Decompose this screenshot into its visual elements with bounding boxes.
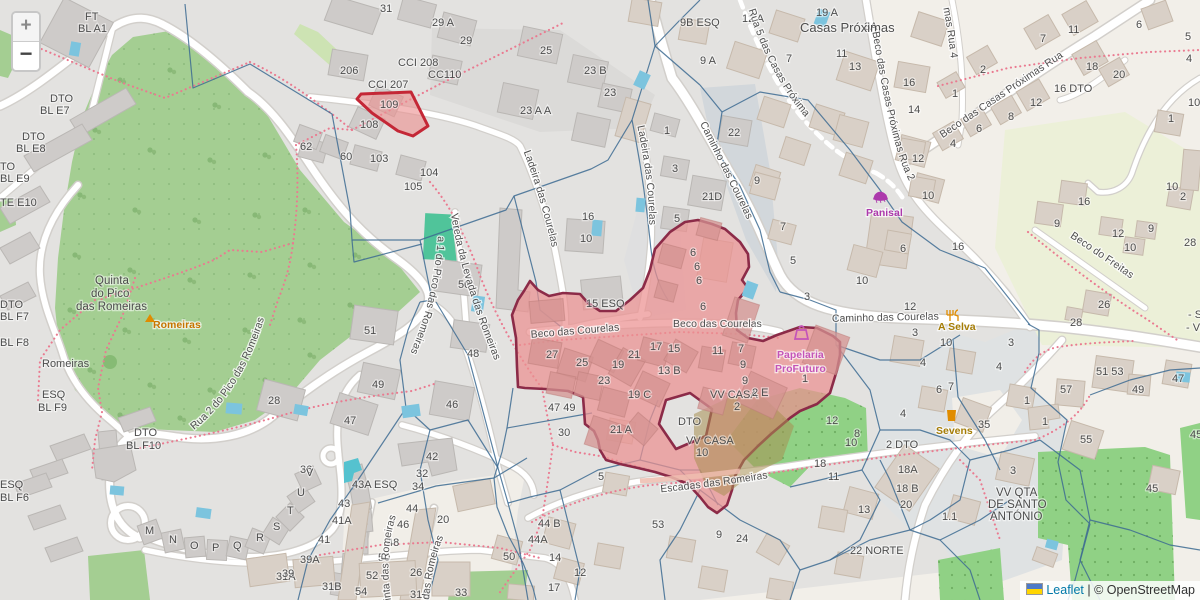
svg-text:11: 11 [836, 48, 847, 60]
svg-text:Beco das Courelas: Beco das Courelas [673, 318, 762, 330]
svg-text:M: M [145, 525, 154, 537]
svg-text:ESQ: ESQ [42, 389, 66, 401]
svg-text:103: 103 [370, 153, 388, 165]
svg-text:4: 4 [950, 138, 956, 150]
svg-text:10: 10 [845, 437, 857, 449]
svg-text:2 DTO: 2 DTO [886, 439, 919, 451]
svg-text:9: 9 [754, 175, 760, 187]
svg-text:das Romeiras: das Romeiras [76, 301, 147, 313]
svg-text:16: 16 [1078, 196, 1090, 208]
svg-text:28: 28 [1184, 237, 1196, 249]
svg-text:9: 9 [742, 375, 748, 387]
svg-text:ESQ: ESQ [0, 479, 24, 491]
svg-text:10: 10 [940, 337, 952, 349]
svg-text:13: 13 [849, 61, 861, 73]
svg-text:O: O [190, 540, 199, 552]
svg-text:BL F9: BL F9 [38, 402, 67, 414]
svg-text:44A: 44A [528, 534, 548, 546]
svg-text:13 B: 13 B [658, 365, 681, 377]
svg-text:- Vi: - Vi [1186, 322, 1200, 334]
svg-text:ProFuturo: ProFuturo [775, 363, 826, 375]
svg-text:47: 47 [344, 415, 356, 427]
svg-text:3: 3 [912, 327, 918, 339]
svg-text:3: 3 [804, 291, 810, 303]
svg-text:3: 3 [1008, 337, 1014, 349]
svg-text:31B: 31B [322, 581, 342, 593]
svg-text:S: S [273, 521, 280, 533]
svg-text:18: 18 [814, 458, 826, 470]
svg-text:23 B: 23 B [584, 65, 607, 77]
svg-text:44: 44 [406, 503, 418, 515]
svg-text:50: 50 [503, 551, 515, 563]
svg-text:BL F7: BL F7 [0, 311, 29, 323]
svg-text:22: 22 [728, 127, 740, 139]
svg-text:109: 109 [380, 99, 398, 111]
svg-text:BL A1: BL A1 [78, 23, 107, 35]
svg-text:4: 4 [1186, 53, 1192, 65]
svg-text:21: 21 [628, 349, 640, 361]
svg-text:3: 3 [672, 163, 678, 175]
svg-text:13: 13 [858, 504, 870, 516]
svg-text:57: 57 [1060, 384, 1072, 396]
svg-text:29 A: 29 A [432, 17, 455, 29]
svg-text:Romeiras: Romeiras [153, 319, 201, 331]
svg-text:16: 16 [952, 241, 964, 253]
svg-text:VV QTA: VV QTA [996, 487, 1038, 499]
svg-text:16: 16 [582, 211, 594, 223]
svg-text:6: 6 [700, 301, 706, 313]
svg-text:17: 17 [650, 341, 662, 353]
svg-text:18 B: 18 B [896, 483, 919, 495]
svg-text:21 A: 21 A [610, 424, 633, 436]
svg-text:6: 6 [696, 275, 702, 287]
svg-text:48: 48 [467, 348, 479, 360]
svg-text:45: 45 [1146, 483, 1158, 495]
svg-text:47: 47 [1172, 373, 1184, 385]
svg-text:6: 6 [976, 123, 982, 135]
svg-text:10: 10 [580, 233, 592, 245]
svg-text:9: 9 [1148, 223, 1154, 235]
svg-text:7: 7 [738, 343, 744, 355]
svg-text:41: 41 [318, 534, 330, 546]
svg-text:1: 1 [1042, 416, 1048, 428]
svg-text:14: 14 [549, 552, 561, 564]
svg-text:7: 7 [1040, 33, 1046, 45]
svg-text:55: 55 [1080, 434, 1092, 446]
svg-text:DTO: DTO [134, 427, 157, 439]
svg-text:1.1: 1.1 [942, 511, 957, 523]
svg-text:DTO: DTO [0, 299, 23, 311]
svg-text:1: 1 [952, 88, 958, 100]
svg-text:20: 20 [1113, 69, 1125, 81]
svg-text:21D: 21D [702, 191, 722, 203]
svg-text:FT: FT [85, 11, 99, 23]
svg-text:2 E: 2 E [752, 387, 769, 399]
svg-text:15 ESQ: 15 ESQ [586, 298, 625, 310]
svg-text:5: 5 [1185, 31, 1191, 43]
svg-text:8: 8 [1008, 111, 1014, 123]
svg-text:16 DTO: 16 DTO [1054, 83, 1093, 95]
svg-text:2: 2 [734, 401, 740, 413]
svg-text:4: 4 [920, 357, 926, 369]
svg-text:9: 9 [1054, 218, 1060, 230]
svg-text:39A: 39A [300, 554, 320, 566]
svg-text:43: 43 [338, 498, 350, 510]
svg-text:18: 18 [1086, 61, 1098, 73]
svg-text:30: 30 [558, 427, 570, 439]
svg-text:16: 16 [903, 77, 915, 89]
svg-text:do Pico: do Pico [91, 288, 129, 300]
svg-text:28: 28 [1070, 317, 1082, 329]
svg-text:Romeiras: Romeiras [42, 358, 90, 370]
svg-text:10: 10 [696, 447, 708, 459]
svg-text:12: 12 [1112, 228, 1124, 240]
svg-text:5: 5 [790, 255, 796, 267]
svg-text:60: 60 [340, 151, 352, 163]
svg-text:42: 42 [426, 451, 438, 463]
svg-text:1: 1 [664, 125, 670, 137]
svg-text:2: 2 [980, 64, 986, 76]
svg-text:V: V [306, 467, 314, 479]
svg-text:44 B: 44 B [538, 518, 561, 530]
svg-text:9: 9 [716, 529, 722, 541]
svg-text:49: 49 [1132, 384, 1144, 396]
svg-text:33: 33 [455, 587, 467, 599]
svg-text:19 A: 19 A [816, 7, 839, 19]
svg-text:CCI 208: CCI 208 [398, 57, 438, 69]
svg-text:24: 24 [736, 533, 748, 545]
svg-text:31: 31 [380, 3, 392, 15]
svg-text:6: 6 [1136, 19, 1142, 31]
svg-text:9: 9 [740, 359, 746, 371]
svg-text:6: 6 [900, 243, 906, 255]
svg-text:4: 4 [996, 361, 1002, 373]
svg-text:10: 10 [1188, 97, 1200, 109]
svg-text:10: 10 [922, 190, 934, 202]
svg-text:29: 29 [460, 35, 472, 47]
svg-text:4: 4 [900, 408, 906, 420]
svg-text:23: 23 [598, 375, 610, 387]
svg-text:10: 10 [1124, 242, 1136, 254]
svg-text:7: 7 [780, 221, 786, 233]
svg-text:35: 35 [978, 419, 990, 431]
svg-text:39: 39 [282, 568, 294, 580]
svg-text:49: 49 [372, 379, 384, 391]
svg-text:45: 45 [1190, 429, 1200, 441]
svg-text:47 49: 47 49 [548, 402, 576, 414]
svg-text:19: 19 [612, 359, 624, 371]
svg-text:A Selva: A Selva [938, 321, 976, 333]
svg-text:N: N [169, 534, 177, 546]
svg-text:23 A A: 23 A A [520, 105, 552, 117]
svg-text:11: 11 [828, 471, 839, 483]
svg-text:5: 5 [674, 213, 680, 225]
svg-text:12: 12 [912, 153, 924, 165]
svg-text:18A: 18A [898, 464, 918, 476]
svg-text:9 A: 9 A [700, 55, 717, 67]
svg-text:32: 32 [416, 468, 428, 480]
svg-text:51 53: 51 53 [1096, 366, 1124, 378]
svg-text:52: 52 [366, 570, 378, 582]
svg-text:BL E7: BL E7 [40, 105, 70, 117]
svg-text:27: 27 [546, 349, 558, 361]
svg-text:53: 53 [652, 519, 664, 531]
svg-text:46: 46 [397, 519, 409, 531]
svg-text:R: R [256, 532, 264, 544]
svg-text:Q: Q [233, 540, 242, 552]
svg-text:26: 26 [1098, 299, 1110, 311]
svg-text:BL F10: BL F10 [126, 440, 161, 452]
svg-text:105: 105 [404, 181, 422, 193]
svg-text:6: 6 [936, 384, 942, 396]
svg-text:9B ESQ: 9B ESQ [680, 17, 720, 29]
svg-text:TO: TO [0, 161, 16, 173]
svg-text:Quinta: Quinta [95, 275, 129, 287]
svg-text:25: 25 [576, 357, 588, 369]
svg-text:51: 51 [364, 325, 376, 337]
svg-text:7: 7 [948, 381, 954, 393]
svg-text:- S: - S [1188, 309, 1200, 321]
svg-text:54: 54 [355, 586, 367, 598]
svg-text:DTO: DTO [22, 131, 45, 143]
svg-text:BL F6: BL F6 [0, 492, 29, 504]
svg-text:23: 23 [604, 87, 616, 99]
svg-text:1: 1 [1024, 395, 1030, 407]
svg-text:ANTÓNIO: ANTÓNIO [990, 510, 1042, 523]
svg-text:VV CASA: VV CASA [686, 435, 734, 447]
svg-text:1: 1 [1168, 113, 1174, 125]
svg-text:Sevens: Sevens [936, 425, 973, 437]
svg-text:TE E10: TE E10 [0, 197, 37, 209]
svg-text:CCI 207: CCI 207 [368, 79, 408, 91]
svg-text:108: 108 [360, 119, 378, 131]
svg-text:Caminho das Courelas: Caminho das Courelas [832, 310, 939, 324]
svg-text:34: 34 [412, 481, 424, 493]
svg-text:T: T [287, 505, 294, 517]
svg-text:20: 20 [900, 499, 912, 511]
svg-text:Papelaria: Papelaria [777, 349, 824, 361]
svg-text:5: 5 [598, 471, 604, 483]
svg-text:BL E9: BL E9 [0, 173, 30, 185]
svg-text:6: 6 [694, 261, 700, 273]
svg-text:3: 3 [1010, 465, 1016, 477]
svg-text:DE SANTO: DE SANTO [988, 499, 1047, 511]
svg-text:11: 11 [1068, 24, 1079, 36]
svg-text:104: 104 [420, 167, 438, 179]
svg-text:43A ESQ: 43A ESQ [352, 479, 398, 491]
svg-text:2: 2 [1180, 191, 1186, 203]
svg-text:22 NORTE: 22 NORTE [850, 545, 904, 557]
svg-text:206: 206 [340, 65, 358, 77]
svg-text:62: 62 [300, 141, 312, 153]
svg-text:BL F8: BL F8 [0, 337, 29, 349]
svg-text:U: U [297, 487, 305, 499]
svg-text:14: 14 [908, 104, 920, 116]
svg-text:CC110: CC110 [428, 69, 461, 81]
svg-text:12: 12 [574, 567, 586, 579]
svg-text:12: 12 [826, 415, 838, 427]
svg-text:26: 26 [410, 567, 422, 579]
svg-text:DTO: DTO [678, 416, 701, 428]
svg-text:20: 20 [437, 514, 449, 526]
svg-text:Panisal: Panisal [866, 207, 903, 219]
svg-text:19 C: 19 C [628, 389, 651, 401]
svg-text:10: 10 [856, 275, 868, 287]
svg-text:BL E8: BL E8 [16, 143, 46, 155]
svg-text:15: 15 [668, 343, 680, 355]
svg-text:11: 11 [712, 345, 723, 357]
svg-text:DTO: DTO [50, 93, 73, 105]
svg-text:28: 28 [268, 395, 280, 407]
svg-text:41A: 41A [332, 515, 352, 527]
svg-text:7: 7 [786, 53, 792, 65]
svg-text:46: 46 [446, 399, 458, 411]
svg-text:10: 10 [1166, 181, 1178, 193]
svg-text:25: 25 [540, 45, 552, 57]
svg-text:P: P [212, 542, 219, 554]
svg-text:12: 12 [1030, 97, 1042, 109]
svg-text:17: 17 [548, 582, 560, 594]
svg-text:6: 6 [690, 247, 696, 259]
